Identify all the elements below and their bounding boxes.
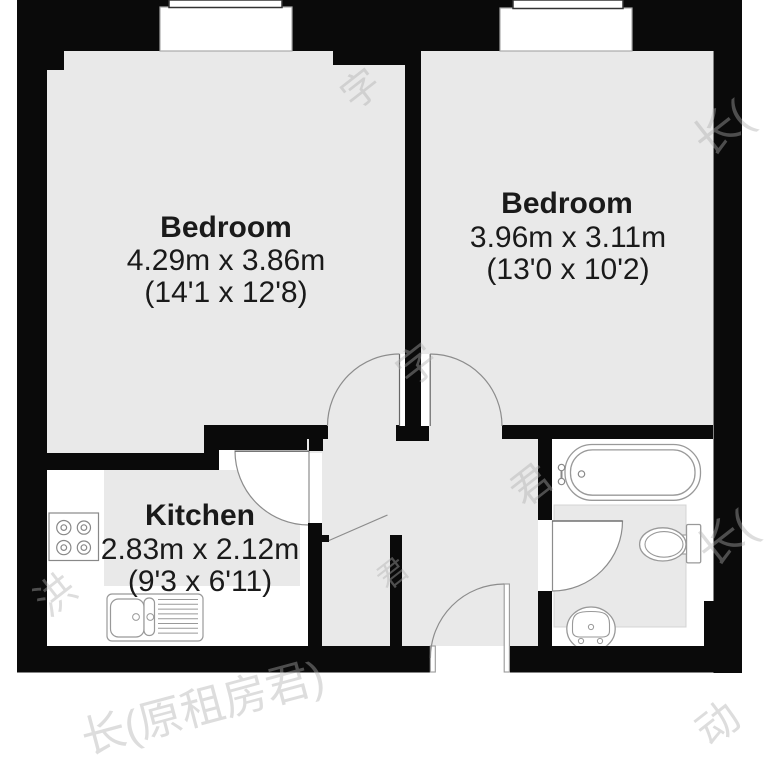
svg-text:(14'1 x 12'8): (14'1 x 12'8) xyxy=(144,276,307,309)
svg-text:(9'3 x 6'11): (9'3 x 6'11) xyxy=(128,565,272,598)
svg-text:Bedroom: Bedroom xyxy=(160,211,292,244)
svg-text:3.96m x 3.11m: 3.96m x 3.11m xyxy=(470,221,666,254)
svg-text:(13'0 x 10'2): (13'0 x 10'2) xyxy=(486,253,649,286)
svg-text:2.83m x 2.12m: 2.83m x 2.12m xyxy=(101,533,299,566)
svg-text:Bedroom: Bedroom xyxy=(501,187,633,220)
svg-text:4.29m x 3.86m: 4.29m x 3.86m xyxy=(127,244,325,277)
svg-text:Kitchen: Kitchen xyxy=(145,499,255,532)
